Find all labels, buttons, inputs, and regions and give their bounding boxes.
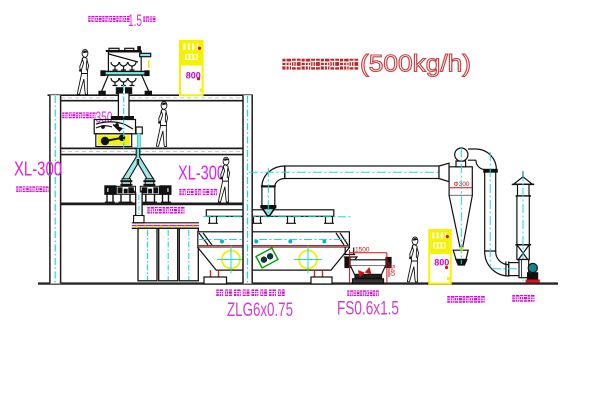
svg-text:540: 540 xyxy=(389,265,396,276)
svg-text:1.5: 1.5 xyxy=(128,12,142,30)
svg-text:1500: 1500 xyxy=(355,247,370,254)
svg-text:800: 800 xyxy=(434,258,449,268)
svg-text:XL-300: XL-300 xyxy=(14,159,62,181)
svg-text:(500kg/h): (500kg/h) xyxy=(360,51,471,78)
svg-text:ZLG6x0.75: ZLG6x0.75 xyxy=(227,300,293,321)
svg-text:FS0.6x1.5: FS0.6x1.5 xyxy=(337,299,399,320)
svg-text:XL-300: XL-300 xyxy=(178,163,225,185)
